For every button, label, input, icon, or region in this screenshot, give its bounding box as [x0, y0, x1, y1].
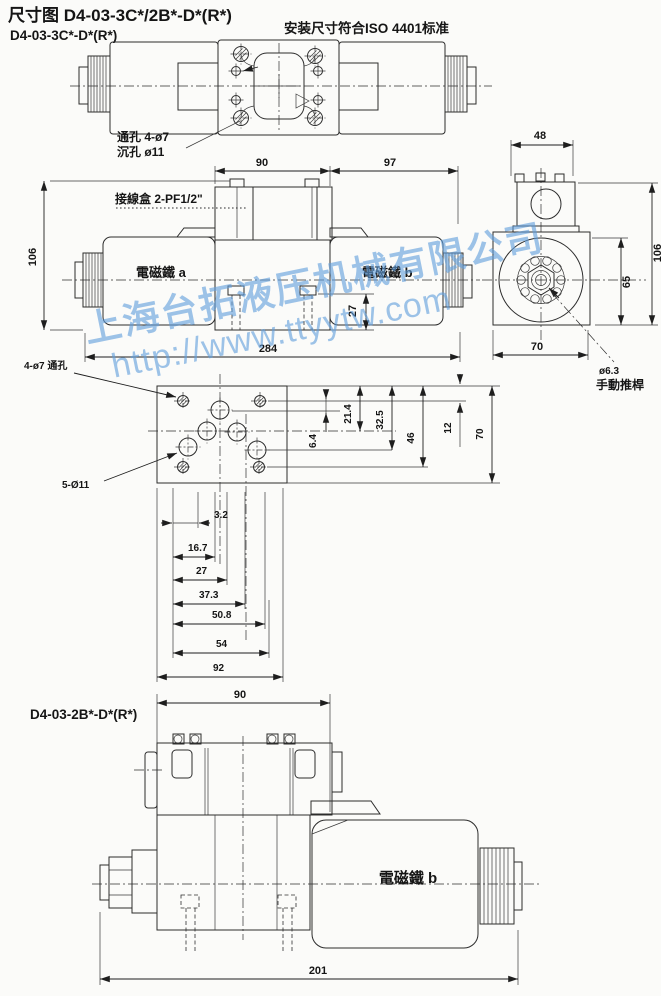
- dim-front-width-right: 97: [384, 157, 396, 169]
- standard-note: 安装尺寸符合ISO 4401标准: [284, 20, 450, 36]
- solenoid-b-label: 電磁鐵 b: [362, 265, 413, 280]
- dim-h-3-2: 3.2: [214, 510, 228, 521]
- dimension-drawing-page: 尺寸图 D4-03-3C*/2B*-D*(R*) D4-03-3C*-D*(R*…: [0, 0, 661, 996]
- dim-front-height: 106: [27, 248, 39, 266]
- flow-direction-marker: [296, 94, 309, 108]
- pattern-port-holes-note: 5-Ø11: [62, 480, 90, 491]
- dim-plug-height: 27: [347, 305, 359, 317]
- dim-total-length: 284: [259, 343, 278, 355]
- dim-2b-top-width: 90: [234, 689, 246, 701]
- front-view-3c: 90 97 電磁鐵 a 電磁鐵 b 接線盒 2-PF1/2": [27, 157, 480, 362]
- dim-h-16-7: 16.7: [188, 543, 208, 554]
- dim-side-body-width: 70: [531, 341, 543, 353]
- pattern-through-holes-note: 4-ø7 通孔: [24, 359, 67, 372]
- drawing-canvas: 尺寸图 D4-03-3C*/2B*-D*(R*) D4-03-3C*-D*(R*…: [0, 0, 661, 996]
- dim-v-21-4: 21.4: [343, 404, 354, 424]
- dim-v-12: 12: [443, 422, 454, 434]
- dim-h-27: 27: [196, 566, 208, 577]
- dim-v-6-4: 6.4: [308, 434, 319, 448]
- manual-pin-label: 手動推桿: [596, 377, 644, 392]
- manual-pin-dia: ø6.3: [599, 366, 619, 377]
- solenoid-b-label-2b: 電磁鐵 b: [379, 869, 437, 887]
- dim-side-height: 106: [652, 244, 661, 262]
- dim-h-50-8: 50.8: [212, 610, 232, 621]
- header: 尺寸图 D4-03-3C*/2B*-D*(R*) D4-03-3C*-D*(R*…: [8, 5, 450, 43]
- dim-v-70: 70: [475, 428, 486, 440]
- junction-box-note: 接線盒 2-PF1/2": [115, 191, 203, 206]
- top-view-3c: 通孔 4-ø7 沉孔 ø11: [70, 40, 492, 159]
- dim-h-37-3: 37.3: [199, 590, 219, 601]
- dim-side-top-width: 48: [534, 130, 546, 142]
- model-3c-label: D4-03-3C*-D*(R*): [10, 28, 117, 43]
- mounting-pattern: 4-ø7 通孔 5-Ø11 6.4 21.4 32.5 46 12 70: [24, 359, 500, 682]
- dim-v-46: 46: [406, 432, 417, 444]
- dim-side-body-height: 65: [621, 276, 633, 288]
- dim-2b-total-length: 201: [309, 965, 327, 977]
- model-2b-label: D4-03-2B*-D*(R*): [30, 707, 137, 722]
- dim-front-width-left: 90: [256, 157, 268, 169]
- dim-h-54: 54: [216, 639, 228, 650]
- page-title: 尺寸图 D4-03-3C*/2B*-D*(R*): [8, 5, 232, 25]
- bottom-view-2b: D4-03-2B*-D*(R*) 90: [30, 689, 540, 985]
- solenoid-a-label: 電磁鐵 a: [136, 265, 187, 280]
- dim-v-32-5: 32.5: [375, 410, 386, 430]
- side-view-3c: 48 106 65 70 ø6.3 手動推桿: [482, 130, 661, 392]
- counterbore-note: 沉孔 ø11: [117, 144, 165, 159]
- through-hole-note: 通孔 4-ø7: [117, 129, 169, 144]
- dim-h-92: 92: [213, 663, 225, 674]
